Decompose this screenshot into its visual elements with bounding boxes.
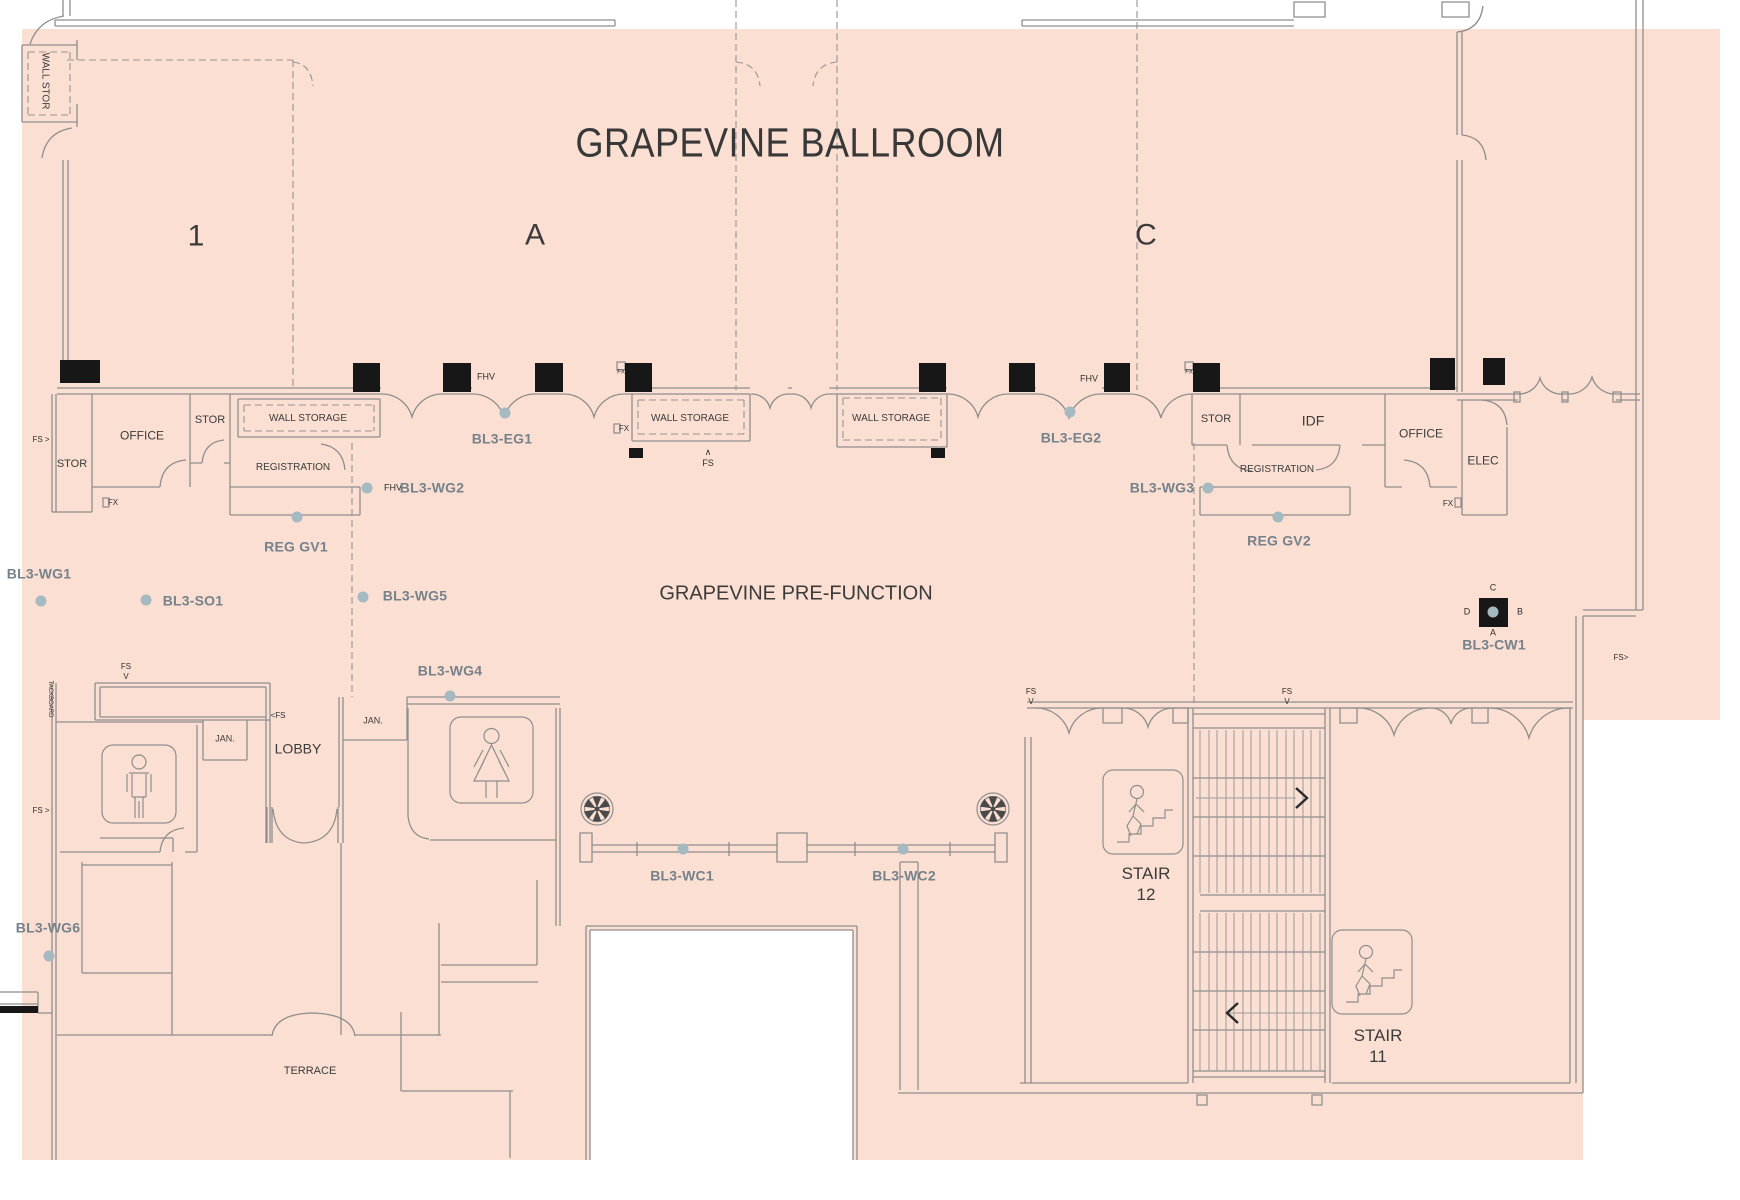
floor-plan-page: GRAPEVINE BALLROOM1ACGRAPEVINE PRE-FUNCT… <box>0 0 1740 1200</box>
floor-area <box>22 29 1720 1160</box>
floor-plan-drawing <box>0 0 1740 1200</box>
camera-marker-bl3-cw1 <box>1479 598 1508 627</box>
